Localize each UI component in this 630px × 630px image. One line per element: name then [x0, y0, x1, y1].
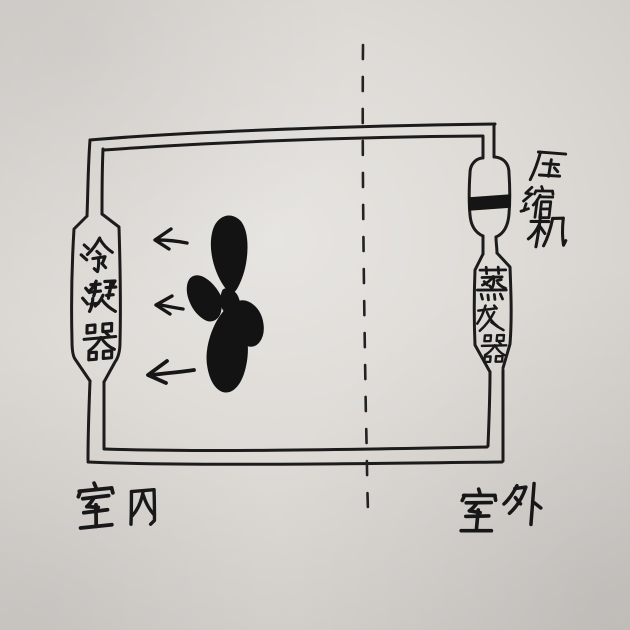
airflow-arrow-2 [156, 296, 183, 314]
diagram-canvas [0, 0, 630, 630]
paper-background: 冷凝器 压缩机 蒸发器 室内 室外 [0, 0, 630, 630]
compressor-piston-band [469, 195, 510, 210]
indoor-outdoor-divider [363, 45, 368, 510]
fan-hub [221, 289, 240, 314]
refrigerant-pipe-loop [87, 124, 503, 464]
compressor-shape [469, 157, 510, 254]
airflow-arrows [148, 229, 194, 383]
fan-icon [187, 216, 263, 392]
airflow-arrow-1 [155, 229, 187, 249]
airflow-arrow-3 [148, 361, 194, 383]
